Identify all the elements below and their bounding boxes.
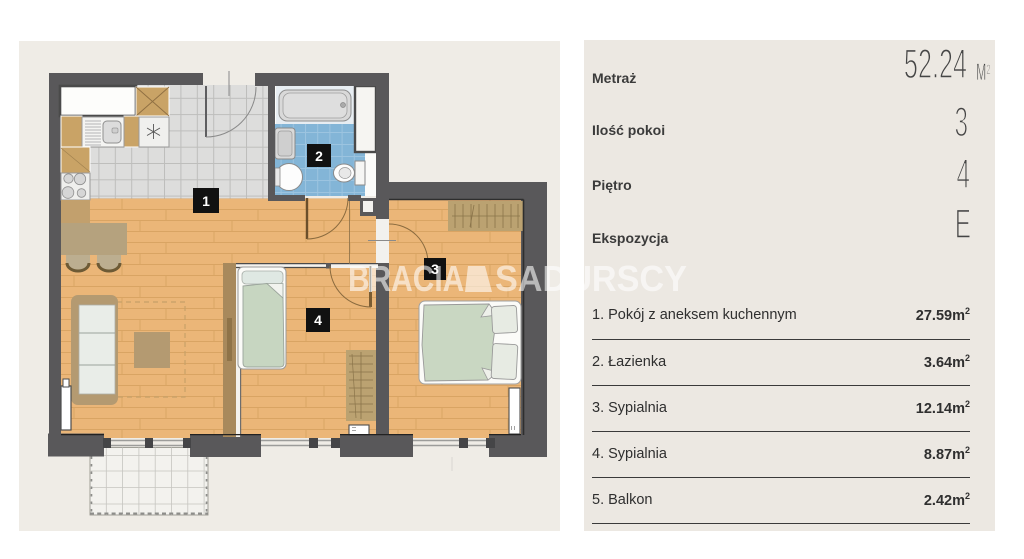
svg-text:1: 1 <box>202 193 210 209</box>
svg-text:2: 2 <box>315 148 323 164</box>
svg-text:4: 4 <box>314 312 322 328</box>
